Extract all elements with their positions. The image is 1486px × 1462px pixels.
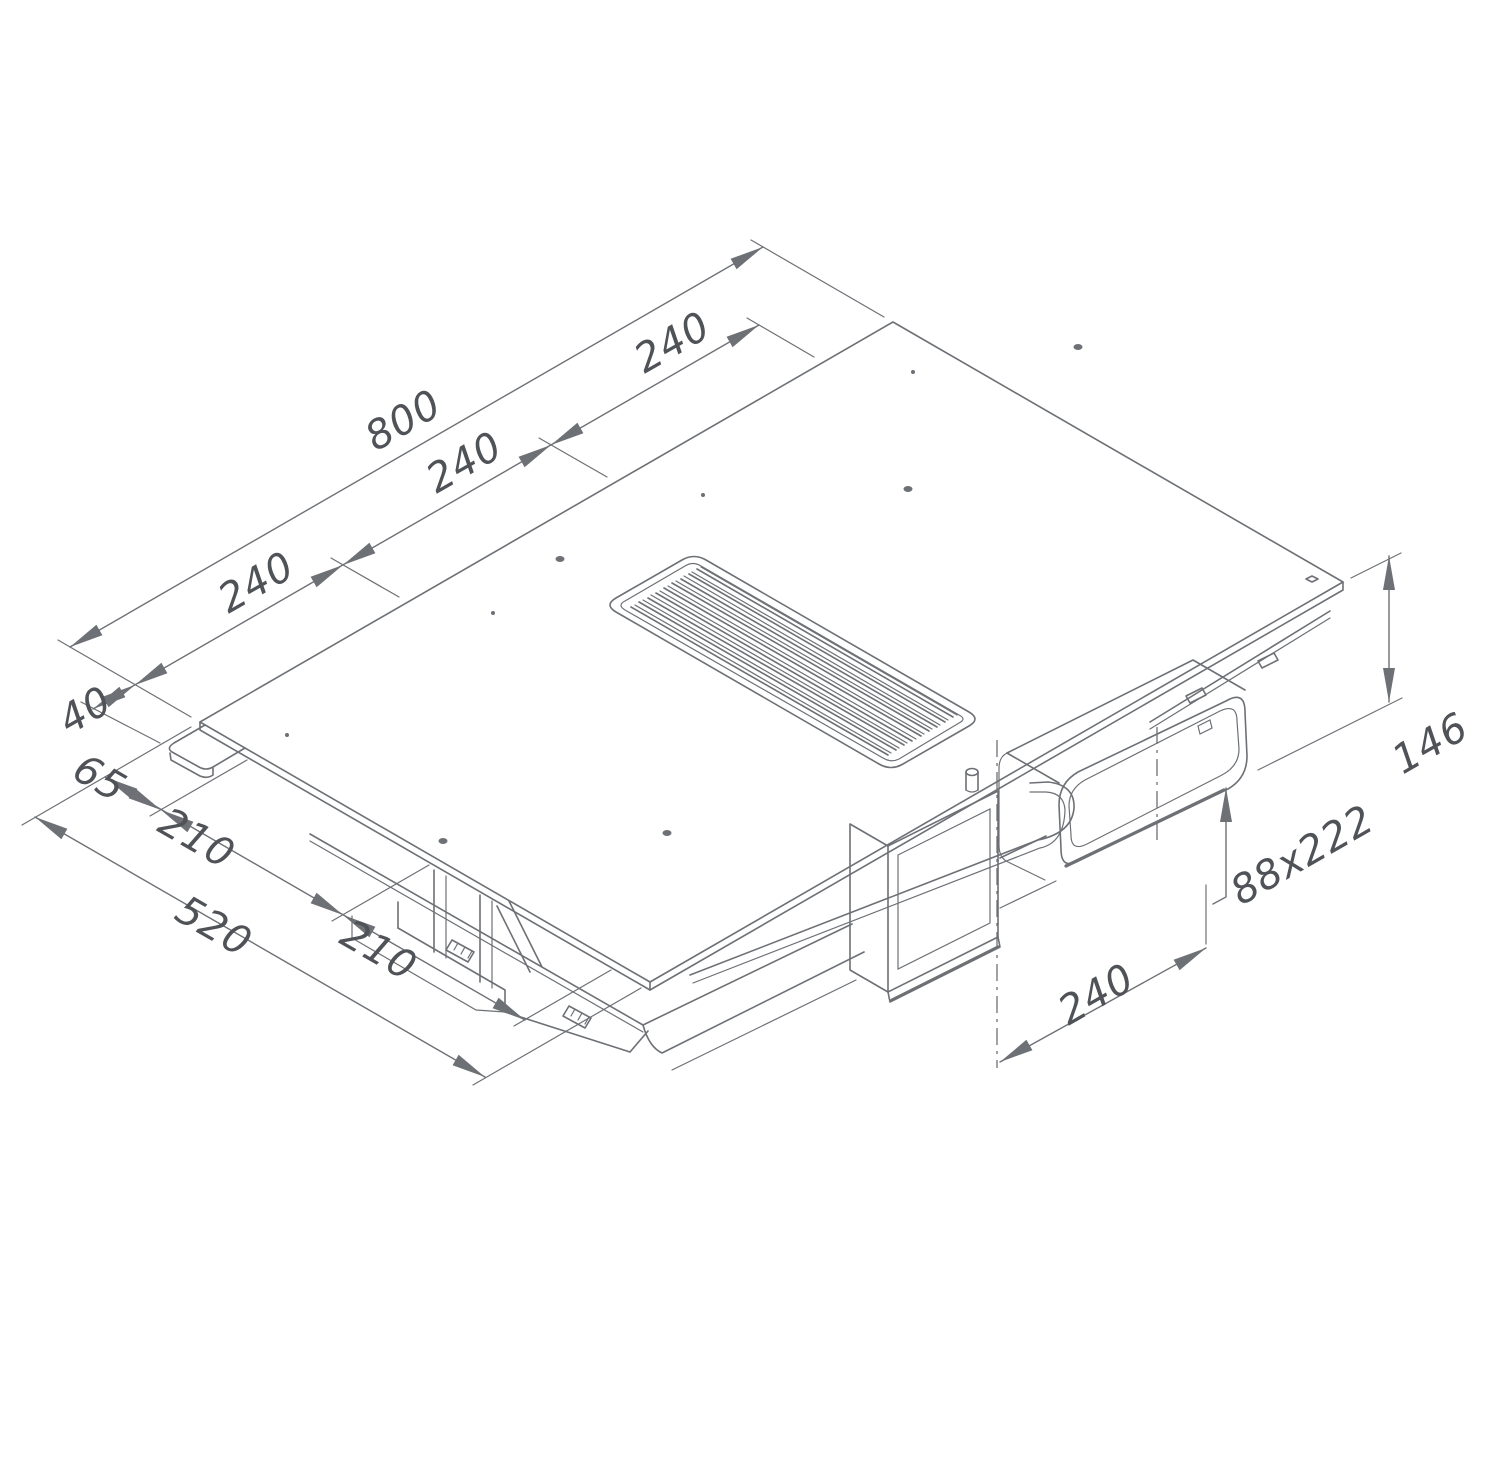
technical-drawing-page: 800 40 240 240 240 6: [0, 0, 1486, 1462]
dim-label-800: 800: [358, 381, 450, 461]
locating-pin: [966, 769, 978, 793]
dim-label-240-right: 240: [627, 303, 719, 383]
dim-label-65: 65: [65, 746, 134, 812]
dim-label-146: 146: [1385, 704, 1477, 784]
isometric-hob-drawing: 800 40 240 240 240 6: [0, 0, 1486, 1462]
dim-label-240-center: 240: [419, 423, 511, 503]
grille-slats: [631, 567, 957, 755]
flat-duct: [999, 660, 1247, 880]
dim-zone-chain: 40 240 240 240: [51, 303, 814, 744]
dim-label-520: 520: [168, 887, 260, 967]
body-right-rail: [1150, 611, 1330, 729]
dim-duct-cross-section: 88x222: [1213, 788, 1382, 915]
motor-housing: [850, 769, 1000, 1003]
dim-overall-height: 146: [1258, 553, 1476, 784]
dim-label-240-duct: 240: [1051, 955, 1143, 1035]
vent-grille: [610, 557, 975, 768]
dim-duct-offset: 240: [1000, 885, 1206, 1062]
dim-label-210-front: 210: [333, 911, 425, 991]
dim-depth-chain: 65 210 210: [22, 727, 611, 1026]
dim-label-40: 40: [51, 678, 120, 744]
dim-label-88x222: 88x222: [1223, 796, 1382, 914]
square-hole: [1306, 576, 1318, 582]
dim-label-240-left: 240: [211, 543, 303, 623]
connection-pipe: [690, 782, 1074, 983]
